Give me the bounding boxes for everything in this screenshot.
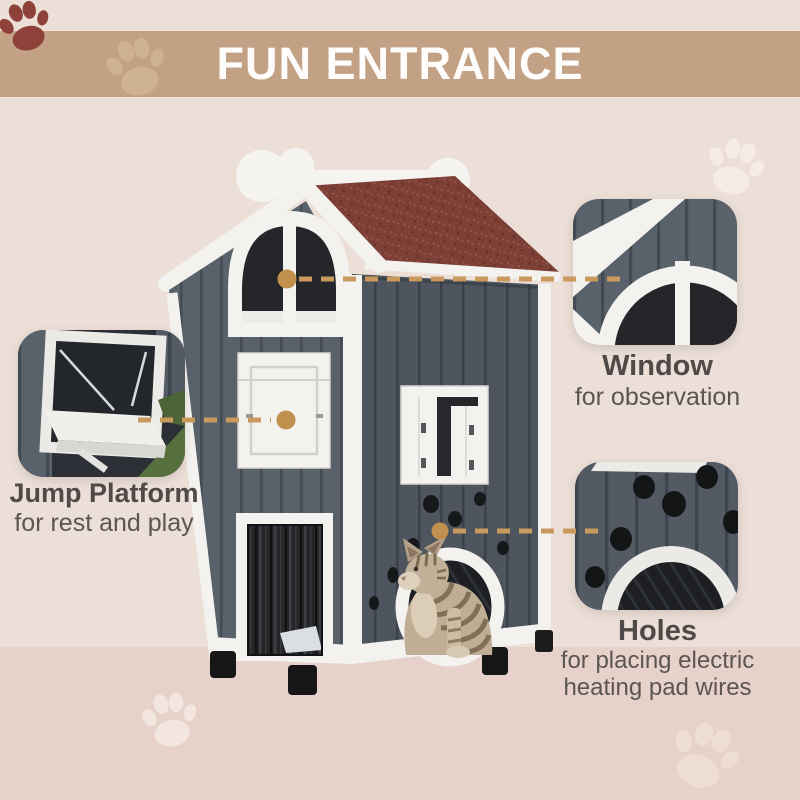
window-zoom-photo <box>573 199 737 345</box>
title-banner: FUN ENTRANCE <box>0 31 800 97</box>
wire-holes <box>369 492 509 610</box>
callout-photo-jump-platform <box>18 330 185 477</box>
front-door <box>236 513 333 661</box>
side-window <box>401 386 488 484</box>
callout-label-holes: Holes for placing electric heating pad w… <box>540 616 775 702</box>
corner-trim-back <box>538 284 551 642</box>
paw-icon <box>698 132 772 201</box>
eave-shadow <box>352 277 549 288</box>
callout-description: for observation <box>550 383 765 411</box>
callout-photo-holes <box>575 462 738 610</box>
entrance-hole <box>402 554 498 660</box>
callout-title: Holes <box>540 616 775 648</box>
callout-label-window: Window for observation <box>550 351 765 411</box>
platform-door <box>238 353 330 468</box>
eave-board <box>364 259 561 282</box>
callout-photo-window <box>573 199 737 345</box>
banner-title: FUN ENTRANCE <box>217 38 584 90</box>
callout-label-jump-platform: Jump Platform for rest and play <box>2 479 206 537</box>
callout-description: for rest and play <box>2 509 206 537</box>
fascia-right <box>306 187 379 265</box>
connector-dot-holes <box>432 523 449 540</box>
roof-ornament <box>236 148 470 202</box>
arched-window <box>228 211 350 337</box>
jump-platform-zoom-photo <box>18 330 185 477</box>
corner-trim-front <box>343 275 362 663</box>
shingle-roof <box>305 176 559 272</box>
side-wall <box>352 274 549 661</box>
callout-title: Jump Platform <box>2 479 206 509</box>
connector-dot-window <box>278 270 297 289</box>
callout-title: Window <box>550 351 765 383</box>
fascia-left <box>166 187 306 284</box>
callout-description: for placing electric heating pad wires <box>540 648 775 702</box>
connector-dot-jump-platform <box>277 411 296 430</box>
holes-zoom-photo <box>575 462 738 610</box>
cat <box>398 535 492 658</box>
front-wall <box>169 201 352 661</box>
